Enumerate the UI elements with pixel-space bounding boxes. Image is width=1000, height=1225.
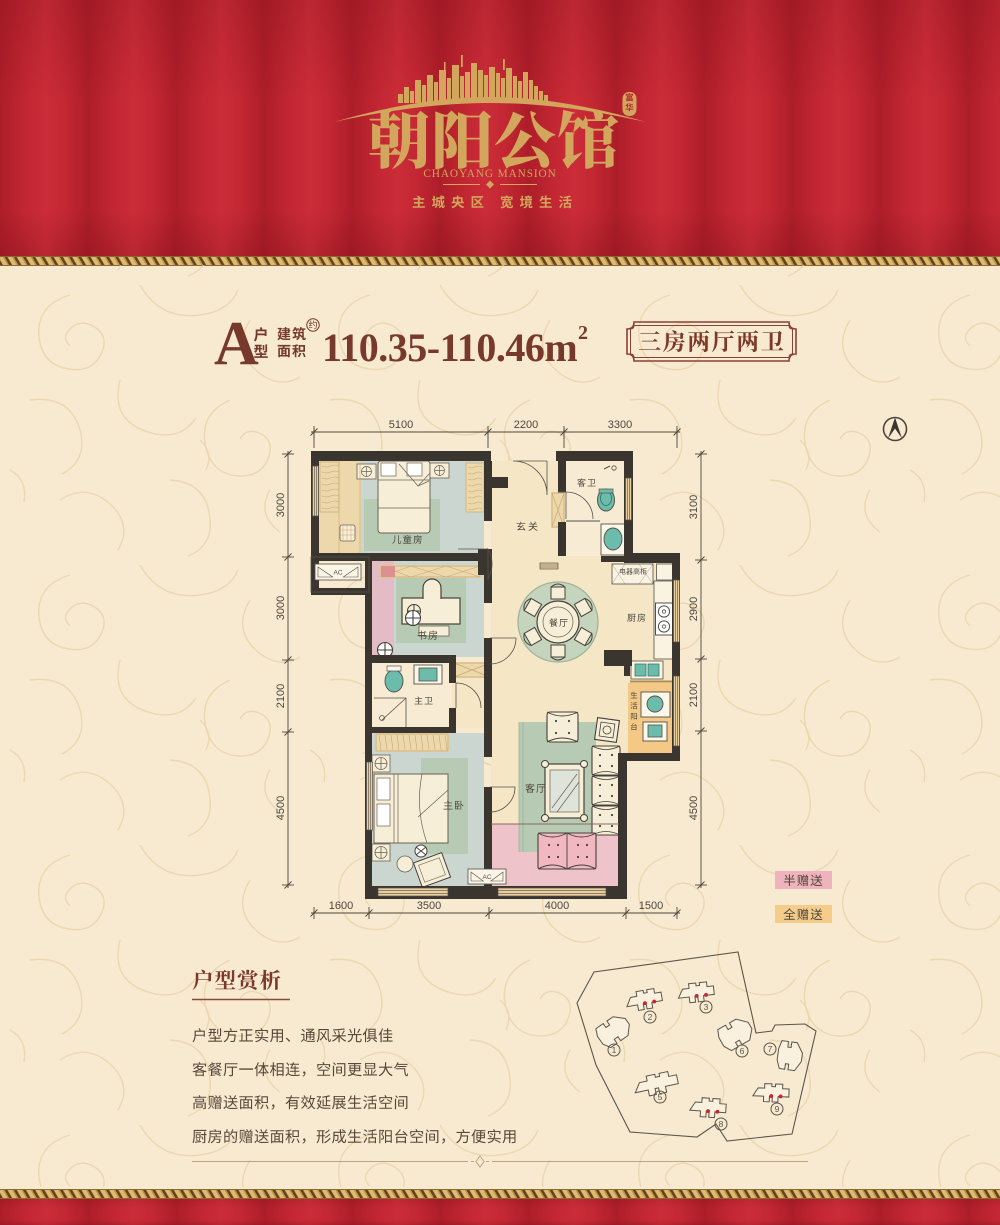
svg-text:6: 6	[740, 1046, 745, 1056]
svg-text:110.35-110.46m: 110.35-110.46m	[322, 325, 577, 370]
svg-text:CHAOYANG MANSION: CHAOYANG MANSION	[423, 168, 556, 180]
svg-text:2: 2	[648, 1012, 653, 1022]
svg-text:2: 2	[578, 322, 588, 344]
svg-text:AC: AC	[482, 874, 491, 881]
svg-text:2100: 2100	[688, 683, 700, 707]
svg-text:8: 8	[719, 1119, 724, 1129]
svg-text:2900: 2900	[688, 597, 700, 621]
svg-text:4500: 4500	[688, 796, 700, 820]
svg-text:3000: 3000	[275, 493, 287, 517]
svg-text:3000: 3000	[275, 596, 287, 620]
svg-text:5100: 5100	[389, 419, 413, 431]
svg-text:9: 9	[775, 1104, 780, 1114]
svg-text:2200: 2200	[514, 419, 538, 431]
svg-text:4000: 4000	[545, 900, 569, 912]
svg-text:5: 5	[658, 1092, 663, 1102]
svg-text:4500: 4500	[275, 796, 287, 820]
svg-text:AC: AC	[333, 570, 342, 577]
svg-text:7: 7	[768, 1044, 773, 1054]
svg-text:2100: 2100	[275, 684, 287, 708]
svg-text:1600: 1600	[329, 900, 353, 912]
svg-text:A: A	[214, 310, 259, 378]
svg-text:3100: 3100	[688, 495, 700, 519]
svg-text:3500: 3500	[417, 900, 441, 912]
svg-text:1: 1	[612, 1045, 617, 1055]
svg-text:3300: 3300	[608, 419, 632, 431]
svg-text:3: 3	[704, 1002, 709, 1012]
svg-text:1500: 1500	[639, 900, 663, 912]
